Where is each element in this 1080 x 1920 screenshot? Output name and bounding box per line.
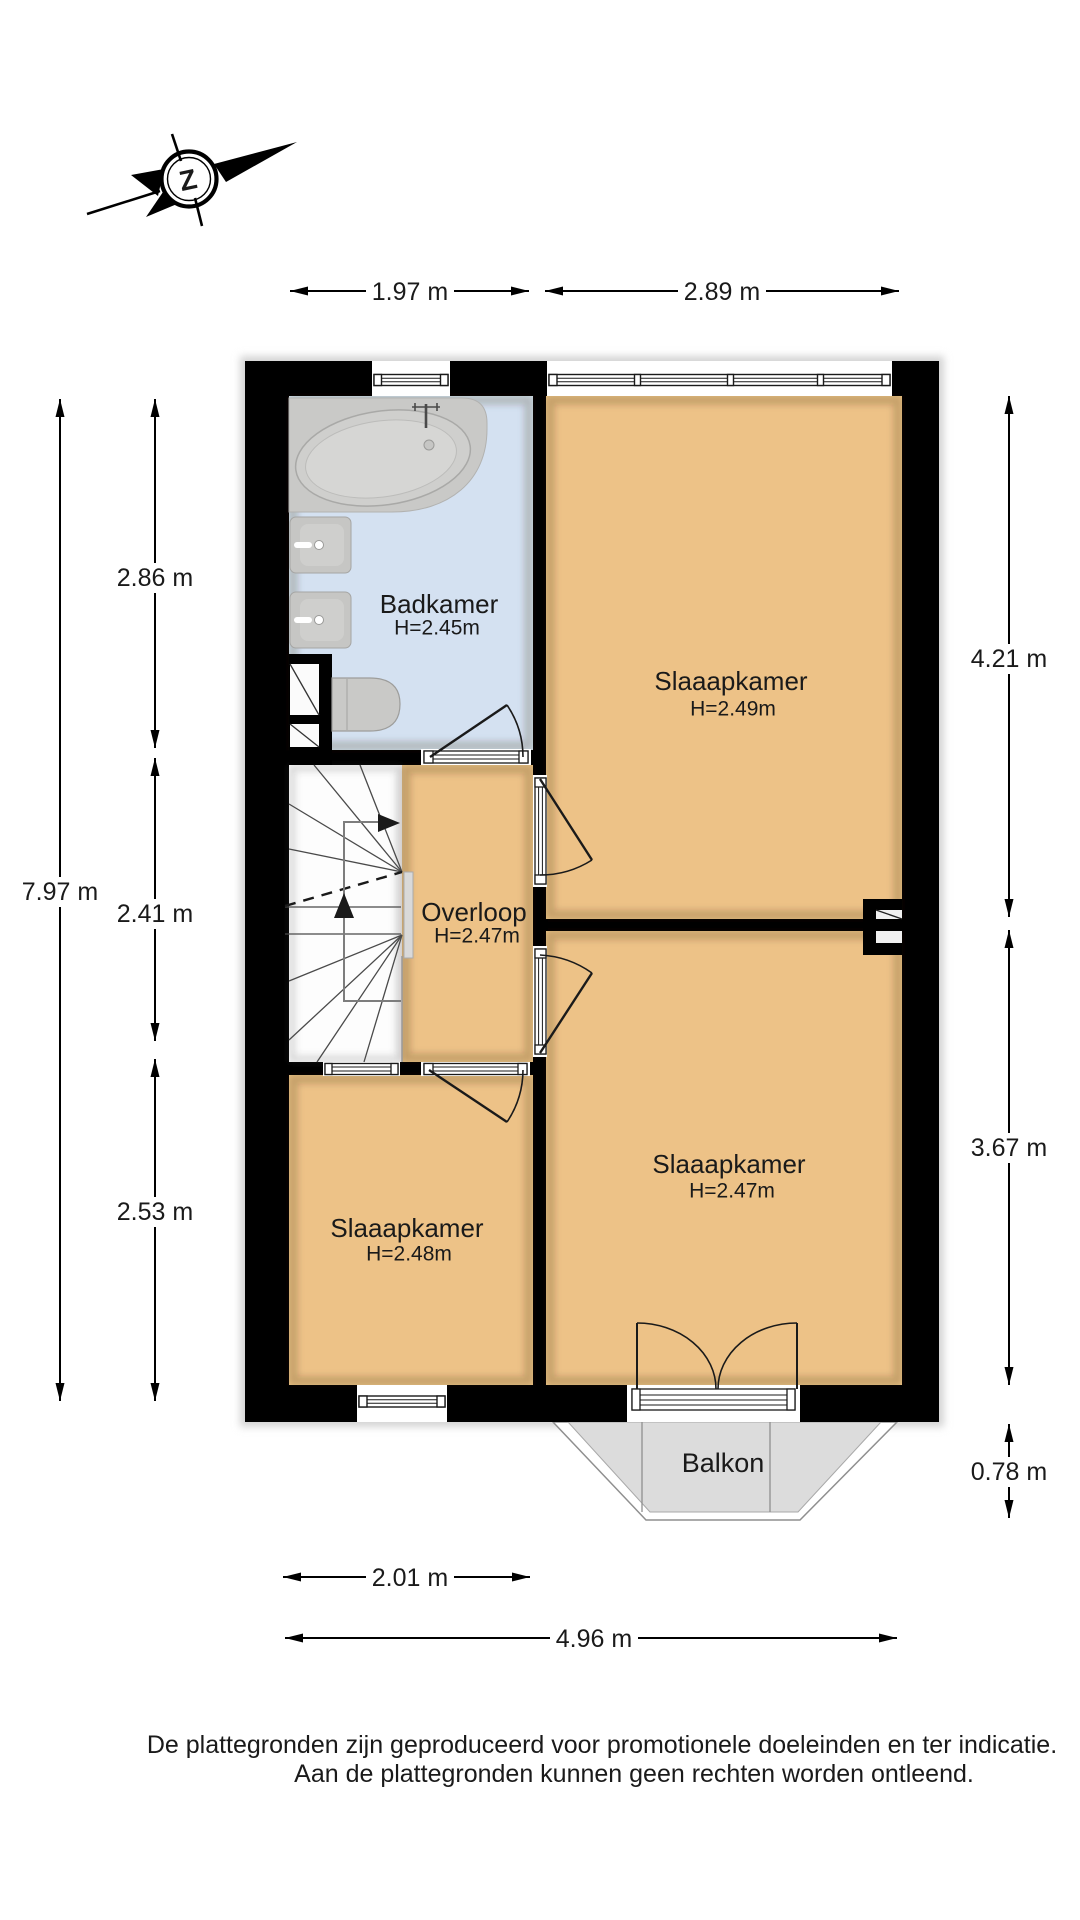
- svg-text:1.97 m: 1.97 m: [372, 278, 448, 306]
- svg-text:4.96 m: 4.96 m: [556, 1625, 632, 1653]
- svg-text:3.67 m: 3.67 m: [971, 1134, 1047, 1162]
- svg-text:2.89 m: 2.89 m: [684, 278, 760, 306]
- svg-text:0.78 m: 0.78 m: [971, 1458, 1047, 1486]
- svg-text:4.21 m: 4.21 m: [971, 645, 1047, 673]
- svg-text:H=2.48m: H=2.48m: [366, 1243, 452, 1266]
- svg-text:2.41 m: 2.41 m: [117, 900, 193, 928]
- svg-text:H=2.47m: H=2.47m: [689, 1180, 775, 1203]
- svg-text:De plattegronden zijn geproduc: De plattegronden zijn geproduceerd voor …: [147, 1731, 1057, 1759]
- svg-text:2.53 m: 2.53 m: [117, 1198, 193, 1226]
- svg-text:Slaaapkamer: Slaaapkamer: [330, 1213, 484, 1243]
- svg-text:7.97 m: 7.97 m: [22, 878, 98, 906]
- svg-text:Slaaapkamer: Slaaapkamer: [654, 666, 808, 696]
- svg-text:Overloop: Overloop: [421, 897, 527, 927]
- svg-text:H=2.47m: H=2.47m: [434, 925, 520, 948]
- svg-text:2.01 m: 2.01 m: [372, 1564, 448, 1592]
- svg-text:2.86 m: 2.86 m: [117, 564, 193, 592]
- svg-text:H=2.49m: H=2.49m: [690, 698, 776, 721]
- svg-text:Balkon: Balkon: [682, 1448, 765, 1478]
- svg-text:Badkamer: Badkamer: [380, 589, 499, 619]
- svg-text:Aan de plattegronden kunnen ge: Aan de plattegronden kunnen geen rechten…: [294, 1760, 974, 1788]
- svg-text:H=2.45m: H=2.45m: [394, 617, 480, 640]
- svg-text:Slaaapkamer: Slaaapkamer: [652, 1149, 806, 1179]
